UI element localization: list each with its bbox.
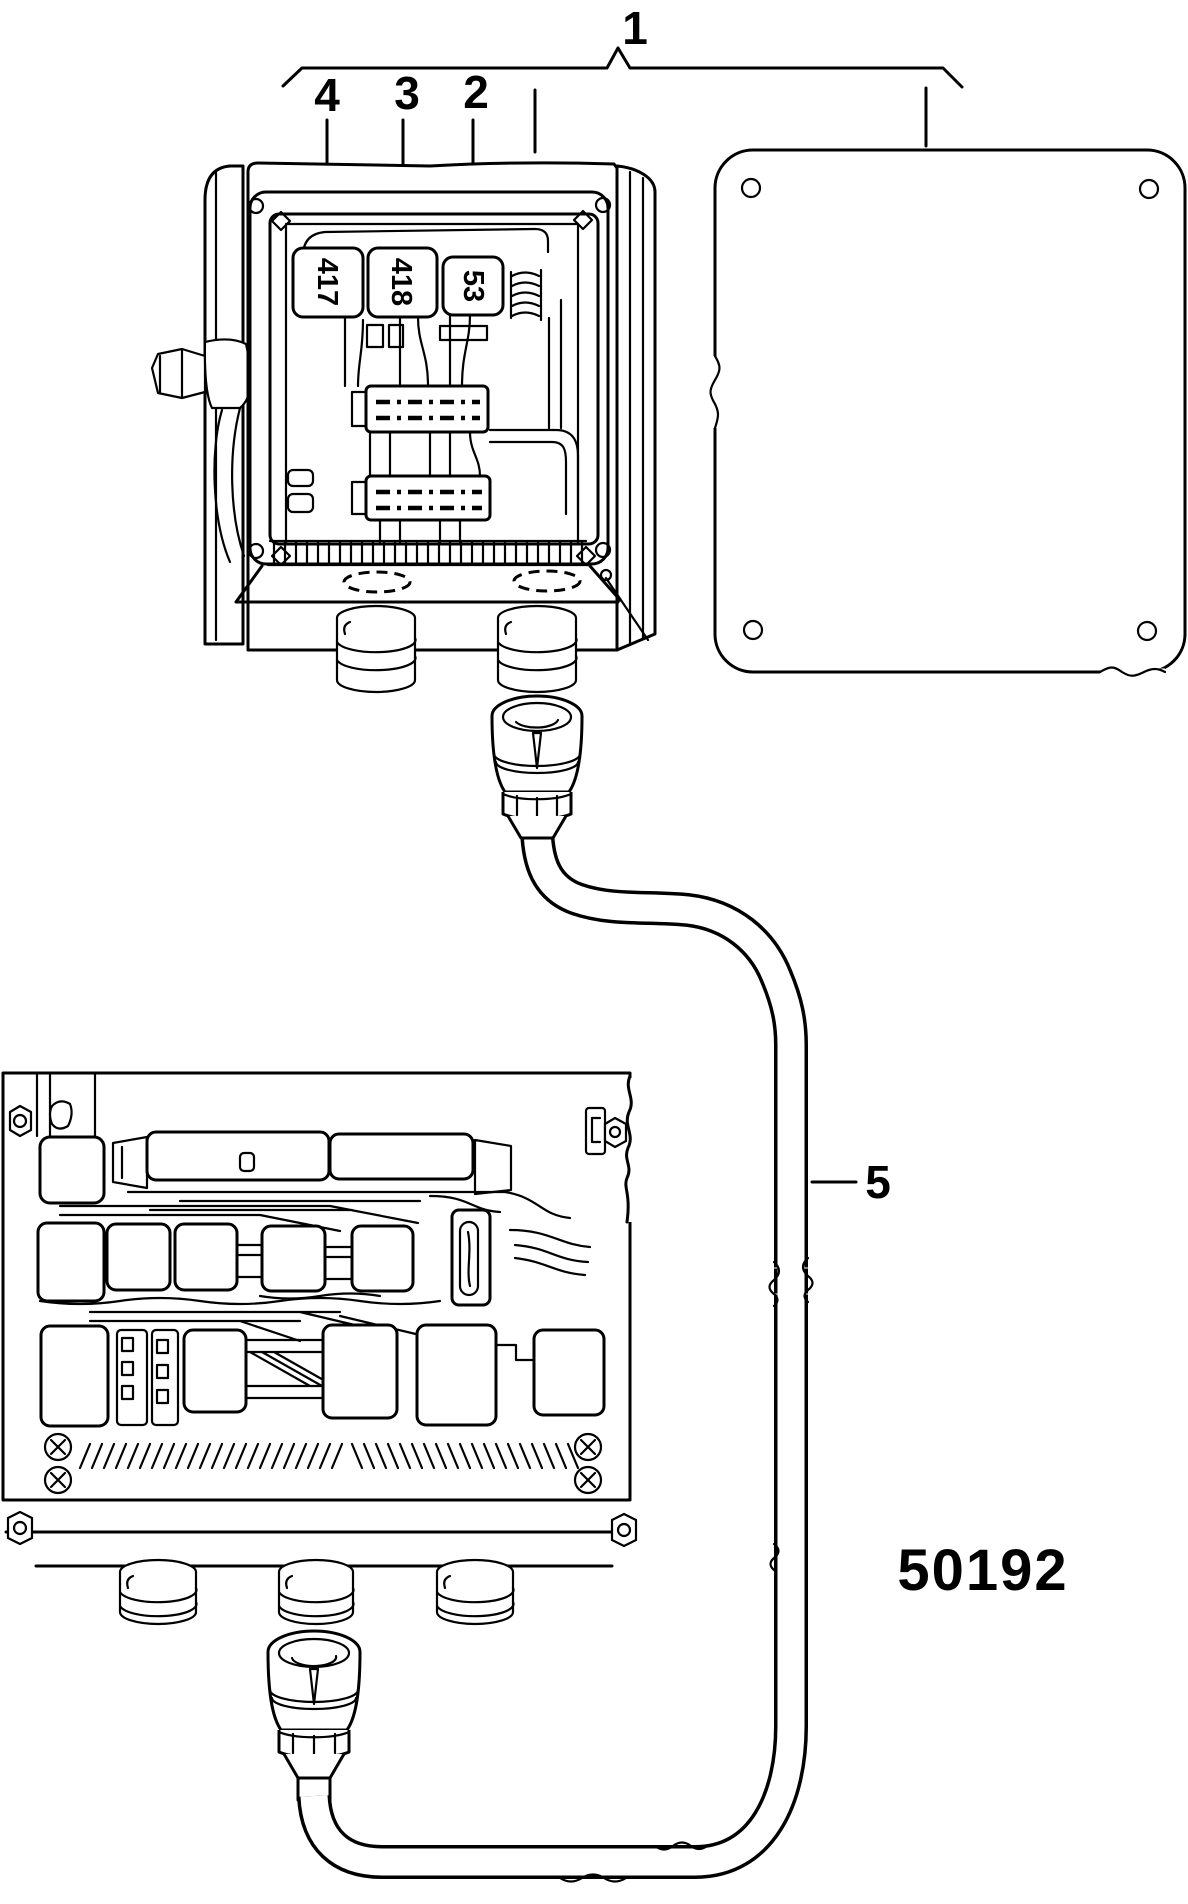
module — [41, 1326, 108, 1426]
box-right-wall — [617, 166, 655, 650]
connector-taper — [508, 816, 566, 838]
module — [184, 1330, 246, 1412]
connector-taper — [284, 1754, 344, 1778]
callout-1-bracket: 1 — [283, 2, 962, 152]
cover-outline — [715, 150, 1185, 672]
relay-53: 53 — [443, 257, 503, 315]
parts-diagram: 1 4 3 2 — [0, 0, 1188, 1904]
connector-strip-2 — [352, 476, 490, 520]
hex-nut — [612, 1514, 636, 1546]
clip — [586, 1108, 605, 1154]
module — [262, 1226, 325, 1291]
lower-junction-box — [3, 1073, 636, 1624]
module — [40, 1137, 104, 1203]
callout-5-label: 5 — [865, 1156, 891, 1208]
cover-plate — [711, 150, 1186, 676]
rail-bar — [147, 1132, 329, 1180]
callout-4-label: 4 — [314, 69, 340, 121]
hex-nut — [8, 1512, 32, 1544]
cable-gland — [337, 606, 416, 692]
relay-53-label: 53 — [457, 270, 489, 302]
relay-417: 417 — [293, 248, 363, 317]
callout-5: 5 — [812, 1156, 891, 1208]
rail-bar — [330, 1134, 473, 1179]
cable-gland — [279, 1560, 354, 1624]
relay-418-label: 418 — [385, 258, 417, 306]
cable-gland — [120, 1560, 197, 1624]
part-number: 50192 — [897, 1538, 1068, 1603]
edge-connector — [452, 1210, 490, 1305]
diagram-canvas: 1 4 3 2 — [0, 0, 1188, 1904]
lower-cable-connector — [268, 1631, 360, 1800]
module — [352, 1226, 413, 1291]
module — [38, 1223, 104, 1301]
relay-417-label: 417 — [311, 258, 343, 306]
pin-connector — [117, 1330, 147, 1425]
upper-junction-box: 417 418 53 — [152, 163, 655, 692]
module — [323, 1325, 397, 1418]
hinge-clamp — [205, 339, 252, 408]
hex-nut — [605, 1118, 626, 1147]
module — [107, 1224, 170, 1290]
upper-cable-connector — [492, 696, 582, 838]
callout-3-label: 3 — [394, 67, 420, 119]
callout-1-label: 1 — [622, 2, 648, 54]
module — [534, 1330, 604, 1415]
connector-strip-1 — [352, 386, 488, 432]
cable-gland — [437, 1560, 514, 1624]
relay-418: 418 — [368, 248, 437, 317]
rail-bracket — [113, 1137, 147, 1188]
cable-gland — [498, 606, 577, 692]
module — [417, 1325, 496, 1425]
callout-2-label: 2 — [463, 66, 489, 118]
rail-bracket — [475, 1140, 511, 1194]
bolt — [50, 1101, 72, 1128]
module — [175, 1224, 237, 1290]
pin-connector — [152, 1330, 178, 1425]
